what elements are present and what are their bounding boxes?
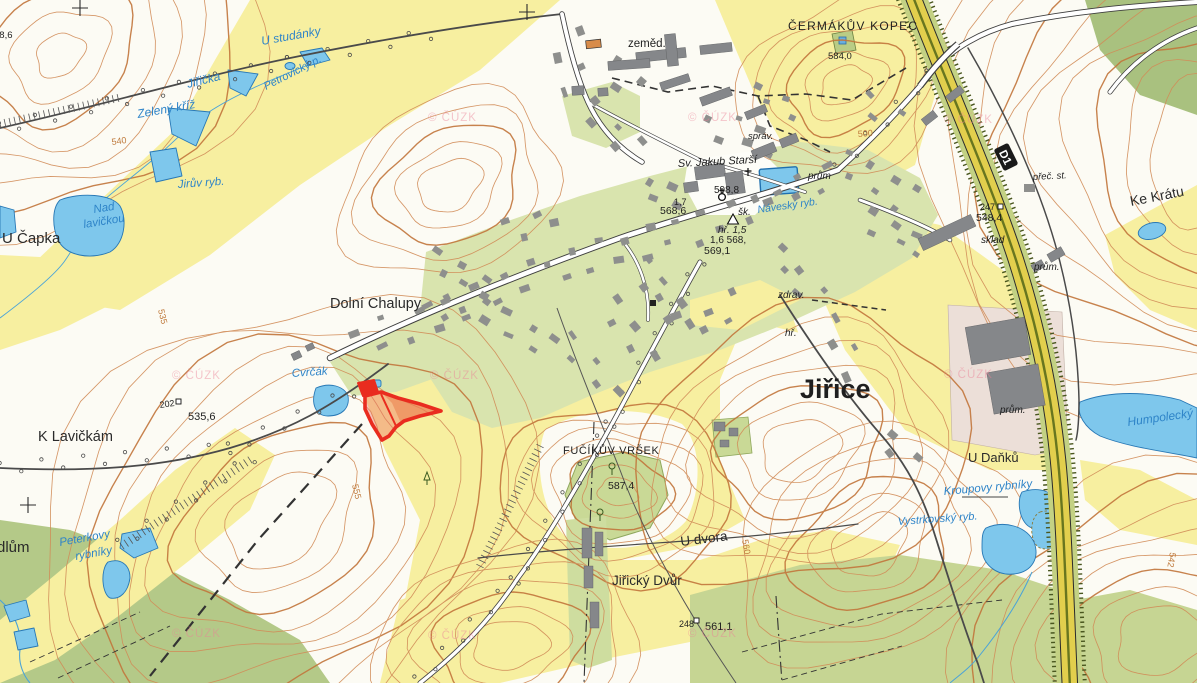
label-sk: šk. bbox=[738, 207, 751, 218]
pond-jiruv bbox=[150, 148, 182, 182]
label-fucikuv-vrsek: FUČÍKŮV VRŠEK bbox=[563, 444, 659, 457]
spot-height: 247 bbox=[980, 202, 995, 212]
monument-icon bbox=[650, 300, 656, 306]
label-prum-east: prům. bbox=[1033, 261, 1060, 273]
contour-label: 500 bbox=[857, 128, 873, 139]
spot-height: 569,1 bbox=[704, 245, 730, 257]
spot-height: 548,4 bbox=[976, 212, 1002, 224]
label-zdrav: zdrav. bbox=[777, 290, 805, 301]
label-jirice: Jiřice bbox=[800, 374, 871, 404]
cuzk-watermark: © ČÚZK bbox=[172, 627, 221, 640]
house bbox=[544, 261, 551, 268]
spot-height: 587,4 bbox=[608, 480, 634, 492]
topo-map-svg[interactable]: D1 U Čapka Dolní Chalupy K Lavičkám dlům… bbox=[0, 0, 1197, 683]
label-k-lavickam: K Lavičkám bbox=[38, 429, 113, 445]
spot-height: 598,8 bbox=[714, 185, 739, 196]
label-jiricky-dvur: Jiřický Dvůr bbox=[612, 573, 682, 588]
label-u-capka: U Čapka bbox=[2, 230, 61, 247]
cuzk-watermark: © ČÚZK bbox=[430, 369, 479, 382]
building bbox=[582, 528, 592, 558]
label-prum-south: prům. bbox=[999, 404, 1026, 416]
building bbox=[729, 428, 738, 436]
building bbox=[714, 422, 725, 431]
spot-height: 568,6 bbox=[660, 205, 686, 217]
cuzk-watermark: © ČÚZK bbox=[428, 629, 477, 642]
building bbox=[572, 86, 585, 96]
pond bbox=[14, 628, 38, 650]
cuzk-watermark: © ČÚZK bbox=[944, 368, 993, 381]
spot-height: 202 bbox=[159, 398, 175, 410]
label-sedlum: dlům bbox=[0, 539, 30, 556]
label-prec-st: přeč. st. bbox=[1032, 170, 1067, 183]
building bbox=[595, 532, 603, 556]
spot-height: 584,0 bbox=[828, 51, 852, 62]
building bbox=[598, 88, 609, 97]
label-prum-pond: prům bbox=[807, 170, 831, 182]
label-cermakuv-kopec: ČERMÁKŮV KOPEC bbox=[788, 18, 918, 33]
label-sprav: správ. bbox=[748, 131, 773, 142]
cuzk-watermark: © ČÚZK bbox=[428, 111, 477, 124]
building bbox=[683, 181, 698, 193]
label-hr: hř. bbox=[785, 328, 797, 339]
label-u-danku: U Daňků bbox=[968, 450, 1019, 465]
cuzk-watermark: © ČÚZK bbox=[944, 113, 993, 126]
farm-building bbox=[586, 39, 602, 49]
cuzk-watermark: © ČÚZK bbox=[688, 111, 737, 124]
label-dolni-chalupy: Dolní Chalupy bbox=[330, 296, 422, 312]
label-sklad: sklad bbox=[981, 235, 1005, 246]
cuzk-watermark: © ČÚZK bbox=[688, 627, 737, 640]
cuzk-watermark: © ČÚZK bbox=[172, 369, 221, 382]
building bbox=[590, 602, 599, 628]
spot-height: 535,6 bbox=[188, 411, 216, 423]
contour-label: 540 bbox=[111, 135, 127, 147]
pumping-station-building bbox=[1024, 184, 1035, 192]
label-zemed: zeměd. bbox=[628, 38, 666, 50]
map-canvas[interactable]: D1 U Čapka Dolní Chalupy K Lavičkám dlům… bbox=[0, 0, 1197, 683]
spot-height: 58,6 bbox=[0, 30, 13, 41]
building bbox=[720, 440, 729, 447]
building bbox=[584, 566, 593, 588]
house bbox=[613, 256, 624, 264]
